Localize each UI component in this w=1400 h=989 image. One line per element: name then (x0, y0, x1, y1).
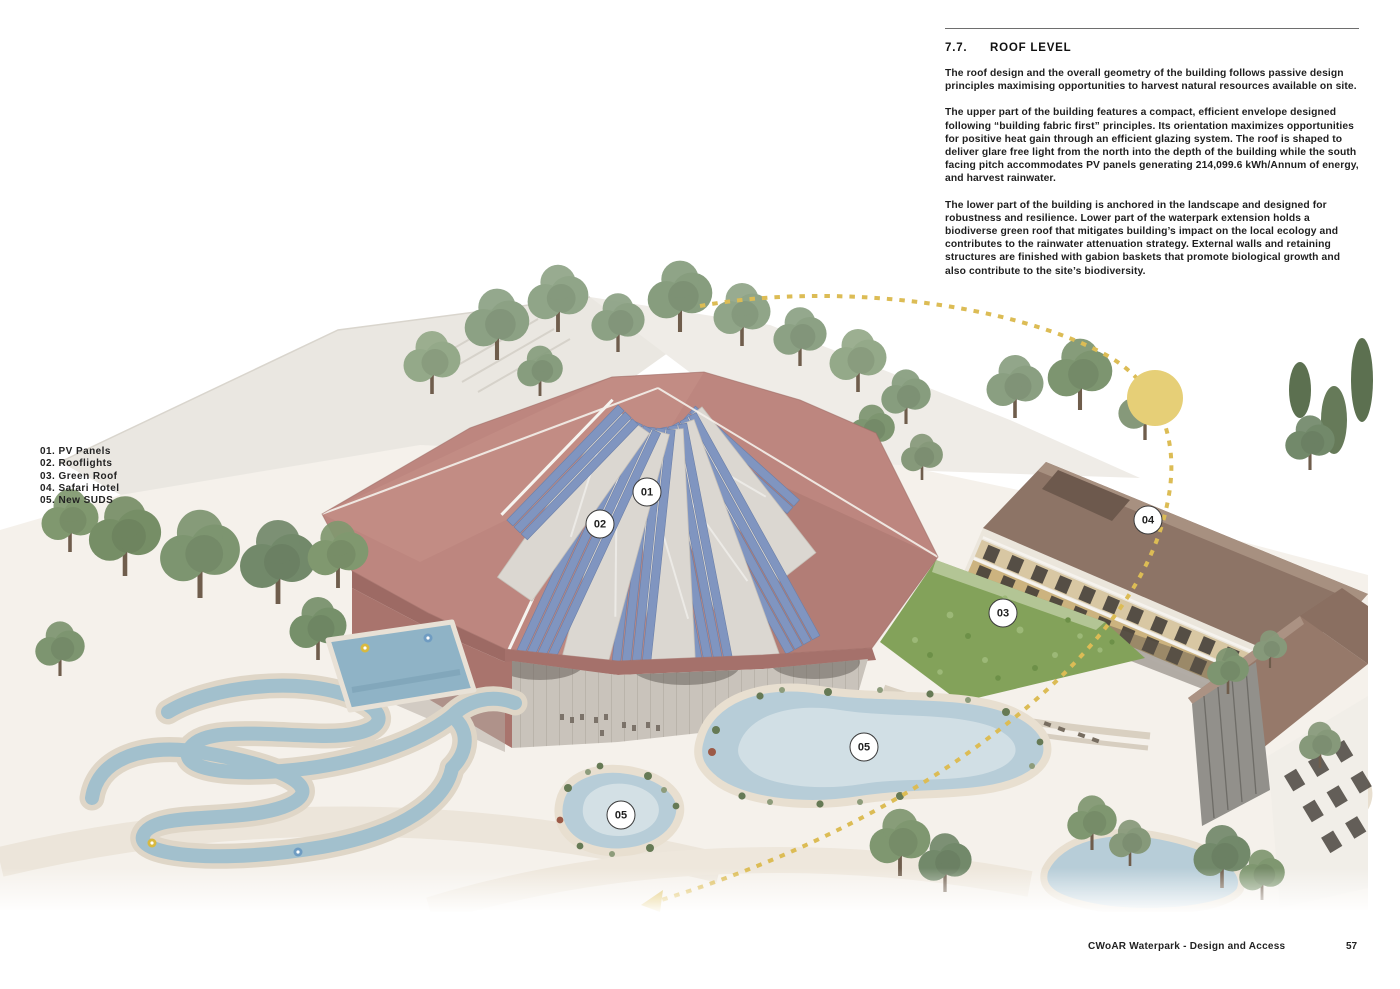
section-roof-level: 7.7. ROOF LEVEL The roof design and the … (945, 28, 1359, 291)
callout-01-pv-panels: 01 (633, 478, 662, 507)
callout-label: 05 (858, 741, 870, 753)
callout-label: 03 (997, 607, 1009, 619)
callout-label: 01 (641, 486, 653, 498)
paragraph-2: The upper part of the building features … (945, 106, 1359, 185)
legend-item-green-roof: 03. Green Roof (40, 471, 119, 483)
callout-02-rooflights: 02 (586, 510, 615, 539)
callout-03-green-roof: 03 (989, 599, 1018, 628)
callout-05-new-suds: 05 (607, 801, 636, 830)
section-heading: 7.7. ROOF LEVEL (945, 42, 1359, 54)
legend-item-safari-hotel: 04. Safari Hotel (40, 483, 119, 495)
document-page: 01 02 03 04 05 05 7.7. ROOF LEVEL The ro… (0, 0, 1400, 989)
callout-label: 05 (615, 809, 627, 821)
callout-05-new-suds: 05 (850, 733, 879, 762)
paragraph-1: The roof design and the overall geometry… (945, 67, 1359, 93)
sun-icon (1127, 370, 1183, 426)
callout-label: 02 (594, 518, 606, 530)
section-title: ROOF LEVEL (990, 42, 1071, 54)
footer-document-title: CWoAR Waterpark - Design and Access (1088, 941, 1285, 952)
legend-item-rooflights: 02. Rooflights (40, 458, 119, 470)
section-number: 7.7. (945, 42, 990, 54)
legend-item-pv-panels: 01. PV Panels (40, 446, 119, 458)
legend-item-new-suds: 05. New SUDS (40, 495, 119, 507)
footer-page-number: 57 (1346, 941, 1357, 952)
callout-label: 04 (1142, 514, 1154, 526)
section-divider (945, 28, 1359, 29)
callout-04-safari-hotel: 04 (1134, 506, 1163, 535)
figure-legend: 01. PV Panels 02. Rooflights 03. Green R… (40, 446, 119, 507)
paragraph-3: The lower part of the building is anchor… (945, 199, 1359, 278)
